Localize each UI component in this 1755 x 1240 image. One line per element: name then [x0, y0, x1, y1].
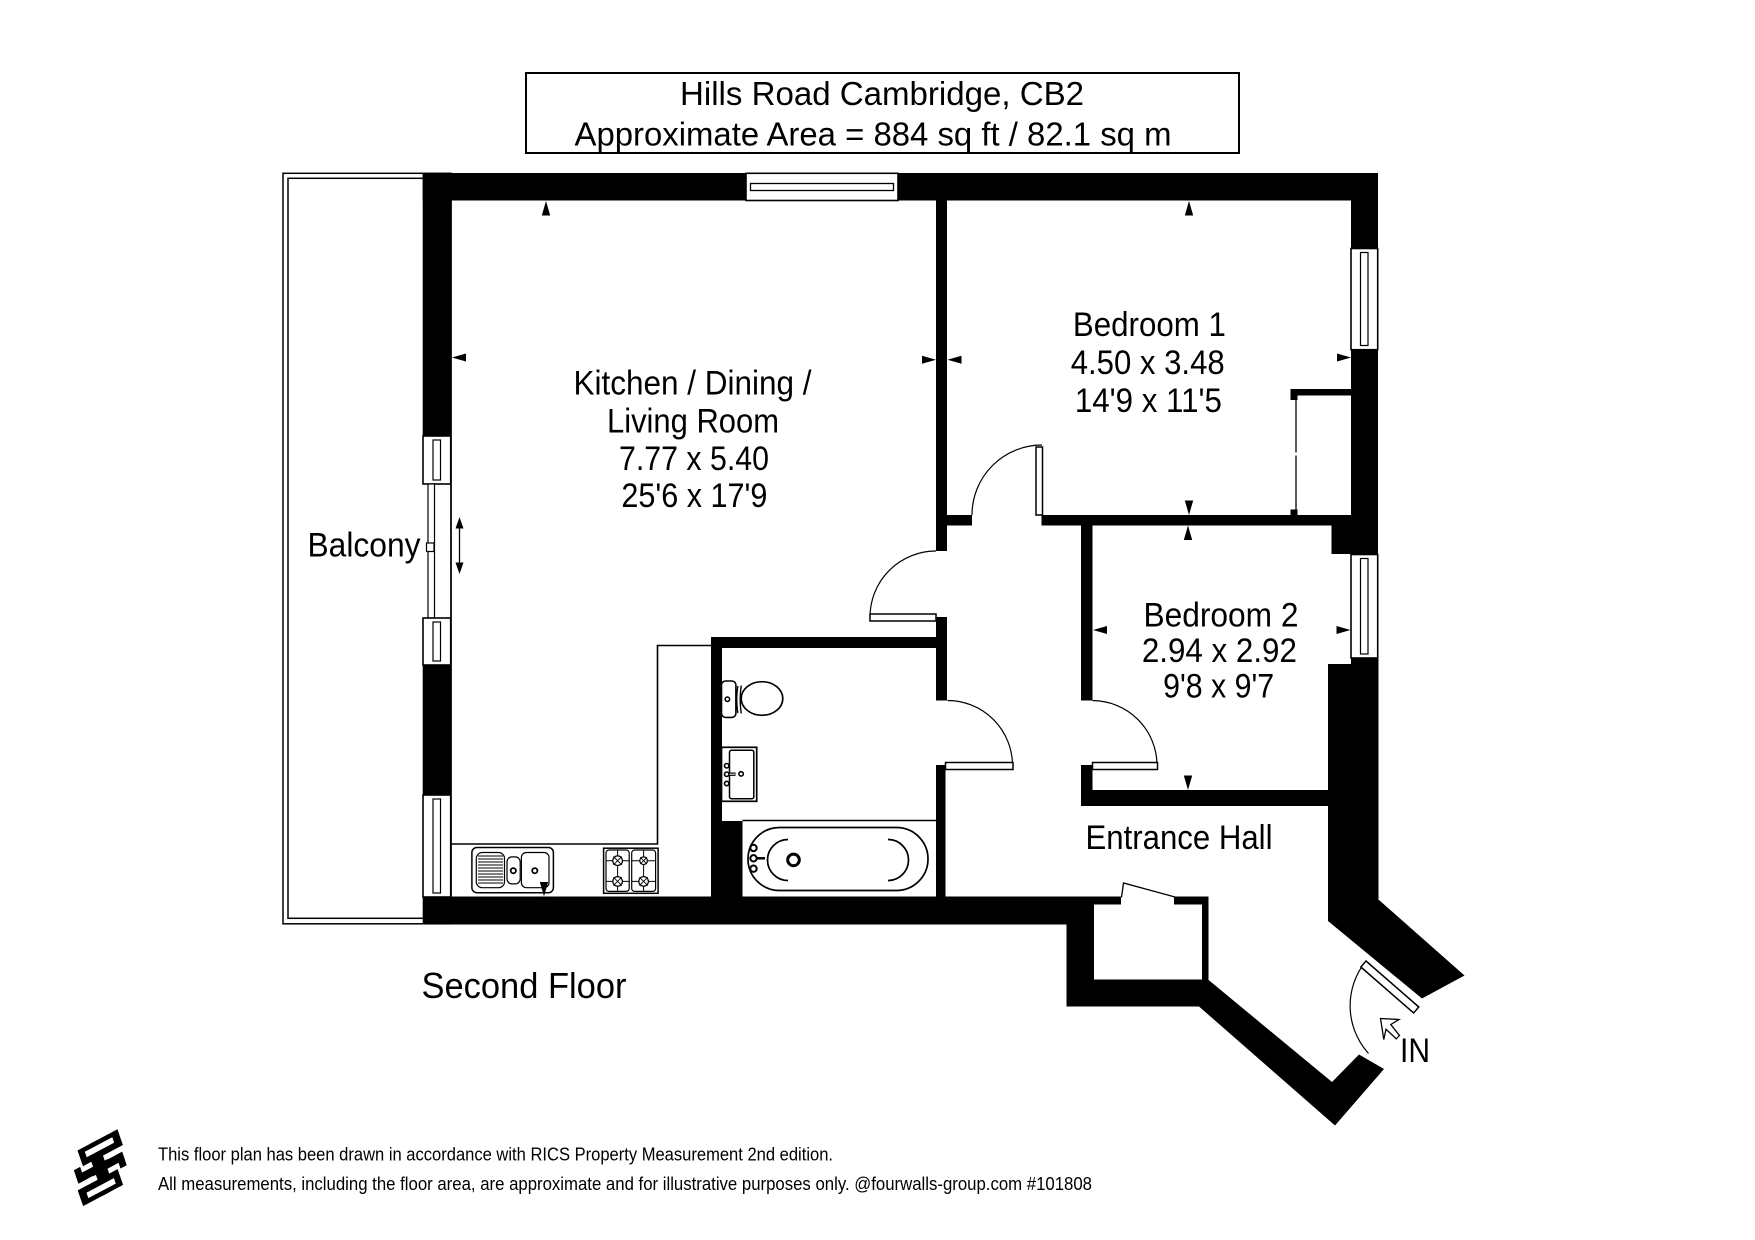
svg-text:7.77 x 5.40: 7.77 x 5.40 [619, 440, 769, 478]
svg-text:All measurements, including th: All measurements, including the floor ar… [158, 1173, 1092, 1194]
svg-text:Kitchen / Dining /: Kitchen / Dining / [574, 364, 813, 402]
svg-text:Bedroom 2: Bedroom 2 [1144, 597, 1299, 635]
svg-text:Living Room: Living Room [607, 403, 779, 441]
svg-text:This floor plan has been drawn: This floor plan has been drawn in accord… [158, 1144, 833, 1165]
svg-text:14'9 x 11'5: 14'9 x 11'5 [1075, 382, 1222, 420]
svg-text:Entrance Hall: Entrance Hall [1086, 819, 1273, 857]
svg-text:4.50 x 3.48: 4.50 x 3.48 [1071, 344, 1225, 382]
svg-text:2.94 x 2.92: 2.94 x 2.92 [1142, 632, 1297, 670]
svg-text:Approximate Area = 884 sq ft /: Approximate Area = 884 sq ft / 82.1 sq m [575, 115, 1172, 152]
svg-text:25'6 x 17'9: 25'6 x 17'9 [621, 477, 767, 515]
svg-text:Second Floor: Second Floor [422, 965, 627, 1006]
svg-text:Hills Road Cambridge, CB2: Hills Road Cambridge, CB2 [680, 75, 1084, 112]
svg-text:Balcony: Balcony [308, 526, 421, 564]
svg-text:Bedroom 1: Bedroom 1 [1073, 306, 1226, 344]
svg-text:9'8 x 9'7: 9'8 x 9'7 [1163, 668, 1274, 706]
svg-text:IN: IN [1400, 1032, 1430, 1070]
